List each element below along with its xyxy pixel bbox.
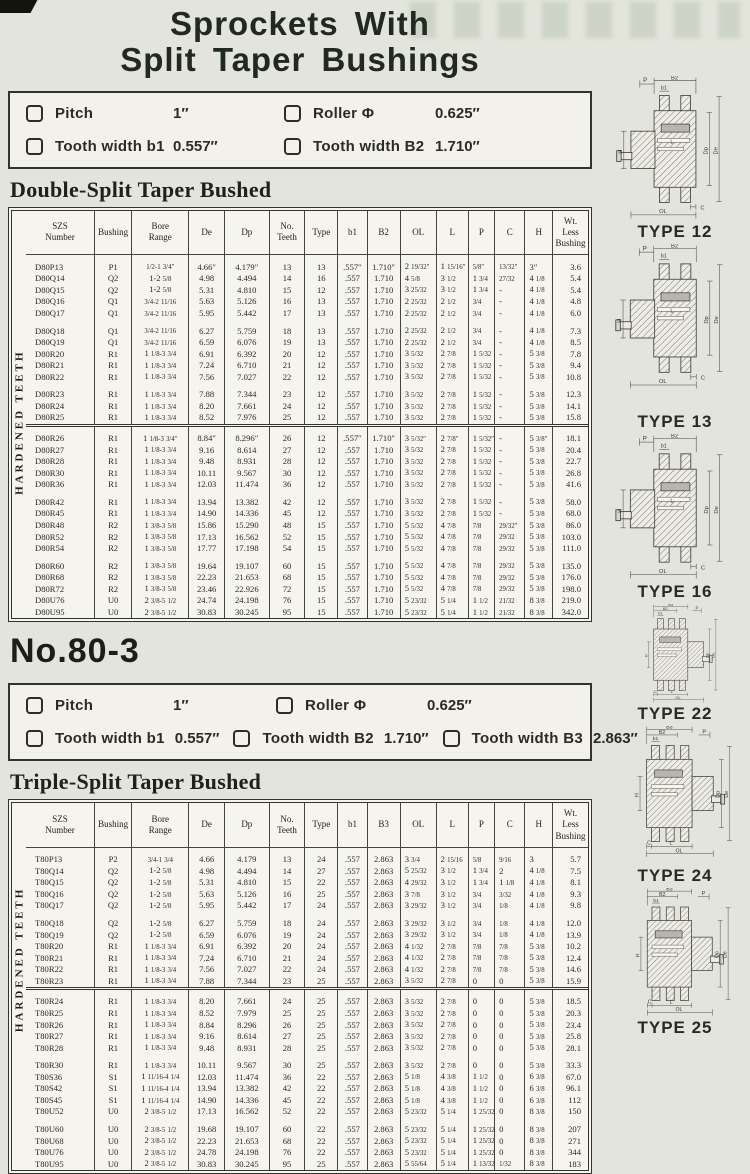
fraction-text: 1/8 bbox=[536, 932, 545, 939]
table-cell: 4.494 bbox=[224, 865, 269, 877]
table-cell: 1.710 bbox=[367, 490, 400, 508]
table-cell: .557 bbox=[338, 1071, 367, 1083]
table-cell: 22 bbox=[269, 964, 304, 976]
table-cell: 5 3/8 bbox=[525, 941, 553, 953]
table-cell: D80Q15 bbox=[26, 284, 95, 296]
table-cell: 3 1/2 bbox=[436, 284, 468, 296]
table-cell: D80U95 bbox=[26, 607, 95, 619]
table-row: T80R23R11 1/8-3 3/47.887.3442325.5572.86… bbox=[26, 975, 588, 988]
fraction-text: 5/32 bbox=[411, 1034, 423, 1041]
fraction-text: 25/32 bbox=[479, 1127, 494, 1134]
fraction-text: 1/8 bbox=[499, 921, 508, 928]
fraction-text: 1/8-3 bbox=[151, 470, 165, 477]
table-row: T80R28R11 1/8-3 3/49.488.9312825.5572.86… bbox=[26, 1042, 588, 1054]
fraction-text: 3/8-3 bbox=[151, 575, 165, 582]
table-cell: Q1 bbox=[95, 308, 132, 320]
table-cell: 7.027 bbox=[224, 371, 269, 383]
table-cell: 25 bbox=[269, 412, 304, 425]
fraction-text: 7/8 bbox=[473, 575, 482, 582]
table-cell: 0 bbox=[468, 1031, 494, 1043]
table-cell: 25 bbox=[305, 1054, 338, 1072]
table-cell: 13 bbox=[305, 319, 338, 337]
table-cell: 1 5/32 bbox=[468, 467, 494, 479]
fraction-text: 7/8 bbox=[447, 1011, 456, 1018]
table-cell: 15 bbox=[305, 554, 338, 572]
table-row: T80S36S11 11/16-4 1/412.0311.4743622.557… bbox=[26, 1071, 588, 1083]
table-row: T80U60U02 3/8-5 1/219.6819.1076022.5572.… bbox=[26, 1118, 588, 1136]
table-cell: 2 7/8 bbox=[436, 456, 468, 468]
table-cell: 5 3/8 bbox=[525, 572, 553, 584]
fraction-text: 7/8 bbox=[473, 967, 482, 974]
table-cell: 0 bbox=[495, 1019, 525, 1031]
table-cell: D80U76 bbox=[26, 595, 95, 607]
table-cell: 13 bbox=[305, 255, 338, 273]
table-cell: 1.710 bbox=[367, 607, 400, 619]
fraction-text: 1/8 bbox=[499, 932, 508, 939]
table-cell: .557 bbox=[338, 889, 367, 901]
table-cell: 24 bbox=[305, 847, 338, 865]
table-row: D80Q15Q21-2 5/85.314.8101512.5571.7103 2… bbox=[26, 284, 588, 296]
fraction-text: 7/8 bbox=[447, 392, 456, 399]
table-cell: 1/8 bbox=[495, 929, 525, 941]
table-cell: R1 bbox=[95, 964, 132, 976]
table-cell: 24 bbox=[269, 989, 304, 1008]
table-cell: T80U68 bbox=[26, 1135, 95, 1147]
column-header: De bbox=[189, 803, 224, 847]
table-cell: 13 bbox=[305, 308, 338, 320]
table-cell: 2 7/8 bbox=[436, 1054, 468, 1072]
fraction-text: 5/32 bbox=[411, 415, 423, 422]
table-cell: 3 5/32 bbox=[400, 1054, 436, 1072]
dimension-label-ol: OL bbox=[676, 848, 683, 854]
dimension-label-l: L bbox=[670, 499, 673, 505]
dimension-label-ol: OL bbox=[659, 209, 667, 215]
table-cell: 20.3 bbox=[552, 1008, 588, 1020]
column-header: OL bbox=[400, 803, 436, 847]
table-cell: 1 1/8-3 3/4 bbox=[132, 975, 189, 988]
fraction-text: 1/8-3 bbox=[151, 511, 165, 518]
fraction-text: 3/8 bbox=[536, 575, 545, 582]
table-cell: 3 7/8 bbox=[400, 889, 436, 901]
fraction-text: 1/2 bbox=[479, 598, 488, 605]
table-cell: S1 bbox=[95, 1095, 132, 1107]
column-header: H bbox=[525, 211, 553, 255]
dimension-label-p: P bbox=[643, 245, 647, 252]
table-cell: .557 bbox=[338, 401, 367, 413]
table-cell: 30.83 bbox=[189, 607, 224, 619]
table-cell: 1.710 bbox=[367, 508, 400, 520]
table-cell: T80U76 bbox=[26, 1147, 95, 1159]
table-cell: 1 1/2 bbox=[468, 1083, 494, 1095]
row-group: T80P13P23/4-1 3/44.664.1791324.5572.8633… bbox=[26, 847, 588, 911]
table-cell: .557 bbox=[338, 284, 367, 296]
fraction-text: 1/2 bbox=[167, 1161, 176, 1168]
table-cell: 11.474 bbox=[224, 479, 269, 491]
table-cell: 2 1/2 bbox=[436, 319, 468, 337]
table-cell: .557 bbox=[338, 877, 367, 889]
table-cell: 3 5/32 bbox=[400, 401, 436, 413]
fraction-text: 3/8 bbox=[536, 586, 545, 593]
table-cell: D80R48 bbox=[26, 520, 95, 532]
table-cell: 4 29/32 bbox=[400, 877, 436, 889]
dimension-label-ol: OL bbox=[659, 379, 668, 385]
table-cell: 1-2 5/8 bbox=[132, 284, 189, 296]
table-cell: D80Q18 bbox=[26, 319, 95, 337]
table-cell: 1 25/32 bbox=[468, 1118, 494, 1136]
table-cell: 4 1/8 bbox=[525, 308, 553, 320]
fraction-text: 29/32 bbox=[499, 534, 514, 541]
table-cell: 2 7/8 bbox=[436, 1008, 468, 1020]
table-cell: 4 1/8 bbox=[525, 877, 553, 889]
dimension-label-h: H bbox=[635, 953, 641, 957]
table-cell: 1.710 bbox=[367, 360, 400, 372]
table-cell: 2 7/8 bbox=[436, 1031, 468, 1043]
fraction-text: 3/8 bbox=[536, 999, 545, 1006]
column-header: No. Teeth bbox=[269, 803, 304, 847]
fraction-text: 5/32 bbox=[479, 415, 491, 422]
spec-label: Tooth width B2 bbox=[313, 138, 435, 155]
table-cell: 4 1/32 bbox=[400, 952, 436, 964]
table-cell: R1 bbox=[95, 371, 132, 383]
fraction-text: 1/8-3 bbox=[151, 955, 165, 962]
fraction-text: 25/32 bbox=[411, 868, 426, 875]
table-cell: 4 3/8 bbox=[436, 1071, 468, 1083]
fraction-text: 7/8 bbox=[473, 563, 482, 570]
fraction-text: 29/32 bbox=[411, 932, 426, 939]
table-cell: 28.1 bbox=[552, 1042, 588, 1054]
fraction-text: 5/32 bbox=[411, 404, 423, 411]
fraction-text: 1/4 bbox=[171, 1098, 180, 1105]
table-cell: 5 1/4 bbox=[436, 595, 468, 607]
row-group: D80R26R11 1/8-3 3/4″8.84″8.296″2612.557″… bbox=[26, 425, 588, 490]
table-cell: 12.3 bbox=[552, 383, 588, 401]
table-row: T80R21R11 1/8-3 3/47.246.7102124.5572.86… bbox=[26, 952, 588, 964]
fraction-text: 3/8-5 bbox=[151, 1109, 165, 1116]
table-cell: 4 1/8 bbox=[525, 929, 553, 941]
table-cell: 0 bbox=[495, 1083, 525, 1095]
table-cell: 7/8 bbox=[468, 520, 494, 532]
vertical-label-hardened-teeth: HARDENED TEETH bbox=[13, 259, 26, 586]
fraction-text: 3/4-2 bbox=[144, 340, 158, 347]
sprocket-cross-section-triple: B3 B2 b1 P Dp De H C L OL bbox=[614, 604, 736, 704]
fraction-text: 3/8 bbox=[536, 1034, 545, 1041]
table-cell: .557 bbox=[338, 444, 367, 456]
table-cell: - bbox=[495, 284, 525, 296]
fraction-text: 5/8 bbox=[163, 892, 172, 899]
table-cell: Q2 bbox=[95, 273, 132, 285]
fraction-text: 1/8 bbox=[411, 1086, 420, 1093]
table-cell: 2 1/2 bbox=[436, 308, 468, 320]
table-cell: 24 bbox=[269, 401, 304, 413]
table-cell: 5.759 bbox=[224, 319, 269, 337]
fraction-text: 5/8 bbox=[411, 276, 420, 283]
table-cell: 20 bbox=[269, 348, 304, 360]
dimension-label-l: L bbox=[670, 1000, 673, 1006]
table-cell: 4.8 bbox=[552, 296, 588, 308]
sprocket-cross-section-double: P B2 b1 Dp De H L C OL bbox=[614, 244, 736, 392]
table-cell: 5.4 bbox=[552, 273, 588, 285]
table-cell: 344 bbox=[552, 1147, 588, 1159]
table-cell: 2 bbox=[495, 865, 525, 877]
table-cell: 3/4-2 11/16 bbox=[132, 337, 189, 349]
table-cell: 3/4 bbox=[468, 900, 494, 912]
table-cell: .557 bbox=[338, 1158, 367, 1170]
table-cell: R1 bbox=[95, 1008, 132, 1020]
table-cell: 18.1 bbox=[552, 425, 588, 444]
table-cell: D80R54 bbox=[26, 543, 95, 555]
table-cell: 36 bbox=[269, 479, 304, 491]
table-cell: 2.863 bbox=[367, 1158, 400, 1170]
table-cell: 1 11/16-4 1/4 bbox=[132, 1083, 189, 1095]
table-cell: 2 7/8 bbox=[436, 1019, 468, 1031]
fraction-text: 29/32 bbox=[499, 563, 514, 570]
table-cell: T80S36 bbox=[26, 1071, 95, 1083]
table-cell: 7.24 bbox=[189, 952, 224, 964]
table-row: D80R21R11 1/8-3 3/47.246.7102112.5571.71… bbox=[26, 360, 588, 372]
table-cell: 5.31 bbox=[189, 877, 224, 889]
table-cell: 21 bbox=[269, 952, 304, 964]
table-cell: 26 bbox=[269, 425, 304, 444]
fraction-text: 3/8 bbox=[536, 1098, 545, 1105]
fraction-text: 3/4 bbox=[479, 276, 488, 283]
table-cell: 1.710 bbox=[367, 383, 400, 401]
table-cell: 0 bbox=[495, 989, 525, 1008]
fraction-text: 3/4 bbox=[479, 287, 488, 294]
table-cell: 5 3/8 bbox=[525, 348, 553, 360]
table-cell: 25 bbox=[305, 1008, 338, 1020]
fraction-text: 3/8-3 bbox=[151, 534, 165, 541]
table-cell: 19.68 bbox=[189, 1118, 224, 1136]
table-row: D80Q18Q13/4-2 11/166.275.7591813.5571.71… bbox=[26, 319, 588, 337]
table-cell: .557 bbox=[338, 1106, 367, 1118]
table-cell: R1 bbox=[95, 444, 132, 456]
table-cell: 4 1/8 bbox=[525, 912, 553, 930]
table-cell: R1 bbox=[95, 989, 132, 1008]
fraction-text: 5/8 bbox=[167, 575, 176, 582]
table-cell: 135.0 bbox=[552, 554, 588, 572]
fraction-text: 7/8 bbox=[447, 967, 456, 974]
dimension-label-dp: Dp bbox=[705, 652, 710, 658]
sprocket-cross-section-triple: B3 B2 b1 P Dp De H C L OL bbox=[614, 726, 736, 859]
table-cell: 1-2 5/8 bbox=[132, 900, 189, 912]
table-cell: 7.5 bbox=[552, 865, 588, 877]
spec-value: 1″ bbox=[173, 697, 189, 714]
table-cell: D80R36 bbox=[26, 479, 95, 491]
table-cell: 9.3 bbox=[552, 889, 588, 901]
fraction-text: 3/4 bbox=[473, 903, 482, 910]
table-cell: 1 1/8-3 3/4 bbox=[132, 952, 189, 964]
fraction-text: 5/32 bbox=[411, 1011, 423, 1018]
table-cell: 27/32 bbox=[495, 273, 525, 285]
table-cell: 58.0 bbox=[552, 490, 588, 508]
checkbox-icon bbox=[443, 730, 460, 747]
table-cell: Q1 bbox=[95, 296, 132, 308]
table-cell: 13 bbox=[305, 296, 338, 308]
table-cell: 16 bbox=[269, 296, 304, 308]
table-row: D80R25R11 1/8-3 3/48.527.9762512.5571.71… bbox=[26, 412, 588, 425]
table-row: D80R27R11 1/8-3 3/49.168.6142712.5571.71… bbox=[26, 444, 588, 456]
table-cell: 1 1/8-3 3/4″ bbox=[132, 425, 189, 444]
fraction-text: 1/4 bbox=[171, 1074, 180, 1081]
fraction-text: 3/8 bbox=[536, 563, 545, 570]
fraction-text: 29/32 bbox=[411, 903, 426, 910]
table-cell: .557 bbox=[338, 273, 367, 285]
table-cell: 4 7/8 bbox=[436, 543, 468, 555]
table-cell: 3 5/32 bbox=[400, 412, 436, 425]
column-header: No. Teeth bbox=[269, 211, 304, 255]
table-cell: R1 bbox=[95, 1054, 132, 1072]
table-cell: 1 25/32 bbox=[468, 1147, 494, 1159]
table-cell: 5 1/4 bbox=[436, 1118, 468, 1136]
table-cell: 1 3/4 bbox=[468, 865, 494, 877]
table-cell: 1.710 bbox=[367, 543, 400, 555]
table-cell: 0 bbox=[495, 1147, 525, 1159]
fraction-text: 5/32 bbox=[479, 447, 491, 454]
fraction-text: 5/32 bbox=[411, 546, 423, 553]
table-cell: R1 bbox=[95, 490, 132, 508]
dimension-label-b1: b1 bbox=[661, 85, 667, 91]
table-cell: 7/8 bbox=[468, 941, 494, 953]
table-cell: 22 bbox=[305, 1135, 338, 1147]
table-cell: 3 5/32 bbox=[400, 1042, 436, 1054]
table-cell: 3 1/2 bbox=[436, 273, 468, 285]
table-cell: 6.59 bbox=[189, 337, 224, 349]
table-cell: 24 bbox=[305, 941, 338, 953]
spec-box-triple: Pitch 1″ Roller Φ 0.625″ Tooth width b1 … bbox=[8, 683, 592, 761]
table-cell: 1.710 bbox=[367, 479, 400, 491]
table-cell: Q2 bbox=[95, 889, 132, 901]
fraction-text: 5/32 bbox=[479, 392, 491, 399]
table-cell: R1 bbox=[95, 975, 132, 988]
table-cell: 30.245 bbox=[224, 1158, 269, 1170]
table-cell: 5 5/32 bbox=[400, 543, 436, 555]
table-cell: 0 bbox=[495, 1118, 525, 1136]
diagram-caption: TYPE 22 bbox=[637, 704, 712, 726]
fraction-text: 29/32 bbox=[411, 880, 426, 887]
table-cell: 2.863 bbox=[367, 847, 400, 865]
fraction-text: 1/4 bbox=[447, 1138, 456, 1145]
table-cell: .557 bbox=[338, 929, 367, 941]
table-cell: 9/16 bbox=[495, 847, 525, 865]
spec-value: 0.625″ bbox=[427, 697, 472, 714]
table-cell: 1.710 bbox=[367, 319, 400, 337]
fraction-text: 5/8 bbox=[163, 276, 172, 283]
column-header: C bbox=[495, 803, 525, 847]
table-cell: 2.863 bbox=[367, 1071, 400, 1083]
table-cell: T80Q14 bbox=[26, 865, 95, 877]
fraction-text: 3/8 bbox=[536, 1022, 545, 1029]
table-cell: .557 bbox=[338, 583, 367, 595]
table-cell: 24 bbox=[305, 912, 338, 930]
table-cell: 15 bbox=[269, 284, 304, 296]
table-cell: 2 1/2 bbox=[436, 337, 468, 349]
table-cell: 2.863 bbox=[367, 912, 400, 930]
fraction-text: 3/4 bbox=[167, 459, 176, 466]
fraction-text: 3/8 bbox=[536, 499, 545, 506]
fraction-text: 7/8 bbox=[447, 470, 456, 477]
table-row: T80R22R11 1/8-3 3/47.567.0272224.5572.86… bbox=[26, 964, 588, 976]
table-cell: 3/4 bbox=[468, 337, 494, 349]
table-cell: 3 5/32 bbox=[400, 348, 436, 360]
diagram-block: P B2 b1 Dp De H L C OL TYPE 16 bbox=[614, 434, 736, 604]
table-cell: 18.5 bbox=[552, 989, 588, 1008]
fraction-text: 1/32 bbox=[411, 967, 423, 974]
table-cell: 8 3/8 bbox=[525, 1158, 553, 1170]
dimension-label-b1: b1 bbox=[653, 736, 659, 742]
table-cell: 3 5/32 bbox=[400, 1031, 436, 1043]
spec-value: 1″ bbox=[173, 105, 189, 122]
table-cell: 4 7/8 bbox=[436, 583, 468, 595]
table-cell: D80R27 bbox=[26, 444, 95, 456]
dimension-label-p: P bbox=[696, 605, 699, 610]
table-cell: 5 3/8 bbox=[525, 467, 553, 479]
table-cell: T80U52 bbox=[26, 1106, 95, 1118]
fraction-text: 1/32 bbox=[411, 955, 423, 962]
table-cell: 2 3/8-5 1/2 bbox=[132, 1147, 189, 1159]
table-cell: 4.494 bbox=[224, 273, 269, 285]
table-cell: 3 5/32 bbox=[400, 456, 436, 468]
table-cell: D80R26 bbox=[26, 425, 95, 444]
table-cell: 5 23/32 bbox=[400, 1106, 436, 1118]
column-header: B2 bbox=[367, 211, 400, 255]
dimension-label-p: P bbox=[702, 729, 706, 735]
fraction-text: 7/8 bbox=[447, 499, 456, 506]
page-title-line1: Sprockets With bbox=[0, 6, 600, 42]
fraction-text: 3/8 bbox=[536, 534, 545, 541]
table-cell: 1 13/32 bbox=[468, 1158, 494, 1170]
fraction-text: 3/8″ bbox=[536, 436, 548, 443]
fraction-text: 3/4 bbox=[167, 1034, 176, 1041]
table-cell: 1.710 bbox=[367, 456, 400, 468]
dimension-label-b1: b1 bbox=[661, 444, 667, 450]
fraction-text: 7/8 bbox=[447, 415, 456, 422]
table-cell: 3 29/32 bbox=[400, 912, 436, 930]
fraction-text: 11/16 bbox=[161, 311, 176, 318]
table-cell: 0 bbox=[468, 1019, 494, 1031]
dimension-label-b3: B3 bbox=[666, 888, 672, 892]
table-cell: 3 bbox=[525, 847, 553, 865]
table-cell: 5 1/8 bbox=[400, 1071, 436, 1083]
table-cell: T80Q19 bbox=[26, 929, 95, 941]
table-cell: T80R27 bbox=[26, 1031, 95, 1043]
column-header: H bbox=[525, 803, 553, 847]
fraction-text: 3/8-3 bbox=[151, 523, 165, 530]
table-cell: 2 3/8-5 1/2 bbox=[132, 1118, 189, 1136]
table-cell: 4.98 bbox=[189, 273, 224, 285]
table-cell: 6.076 bbox=[224, 337, 269, 349]
fraction-text: 1/8 bbox=[411, 1074, 420, 1081]
table-cell: 5 1/4 bbox=[436, 1106, 468, 1118]
table-cell: U0 bbox=[95, 595, 132, 607]
table-cell: 4.810 bbox=[224, 284, 269, 296]
table-cell: 2.863 bbox=[367, 964, 400, 976]
table-cell: 2.863 bbox=[367, 929, 400, 941]
spec-value: 0.557″ bbox=[175, 730, 220, 747]
table-cell: 1 5/32 bbox=[468, 348, 494, 360]
table-cell: 7/8 bbox=[468, 952, 494, 964]
table-cell: 8.52 bbox=[189, 1008, 224, 1020]
table-row: D80Q16Q13/4-2 11/165.635.1261613.5571.71… bbox=[26, 296, 588, 308]
fraction-text: 7/8 bbox=[473, 586, 482, 593]
dimension-label-h: H bbox=[617, 319, 623, 323]
fraction-text: 3/4 bbox=[167, 415, 176, 422]
table-cell: 3 1/2 bbox=[436, 929, 468, 941]
fraction-text: 5/8 bbox=[167, 546, 176, 553]
table-cell: 1 5/32 bbox=[468, 383, 494, 401]
table-cell: T80R20 bbox=[26, 941, 95, 953]
fraction-text: 5/32 bbox=[411, 499, 423, 506]
fraction-text: 1/8-3 bbox=[151, 499, 165, 506]
